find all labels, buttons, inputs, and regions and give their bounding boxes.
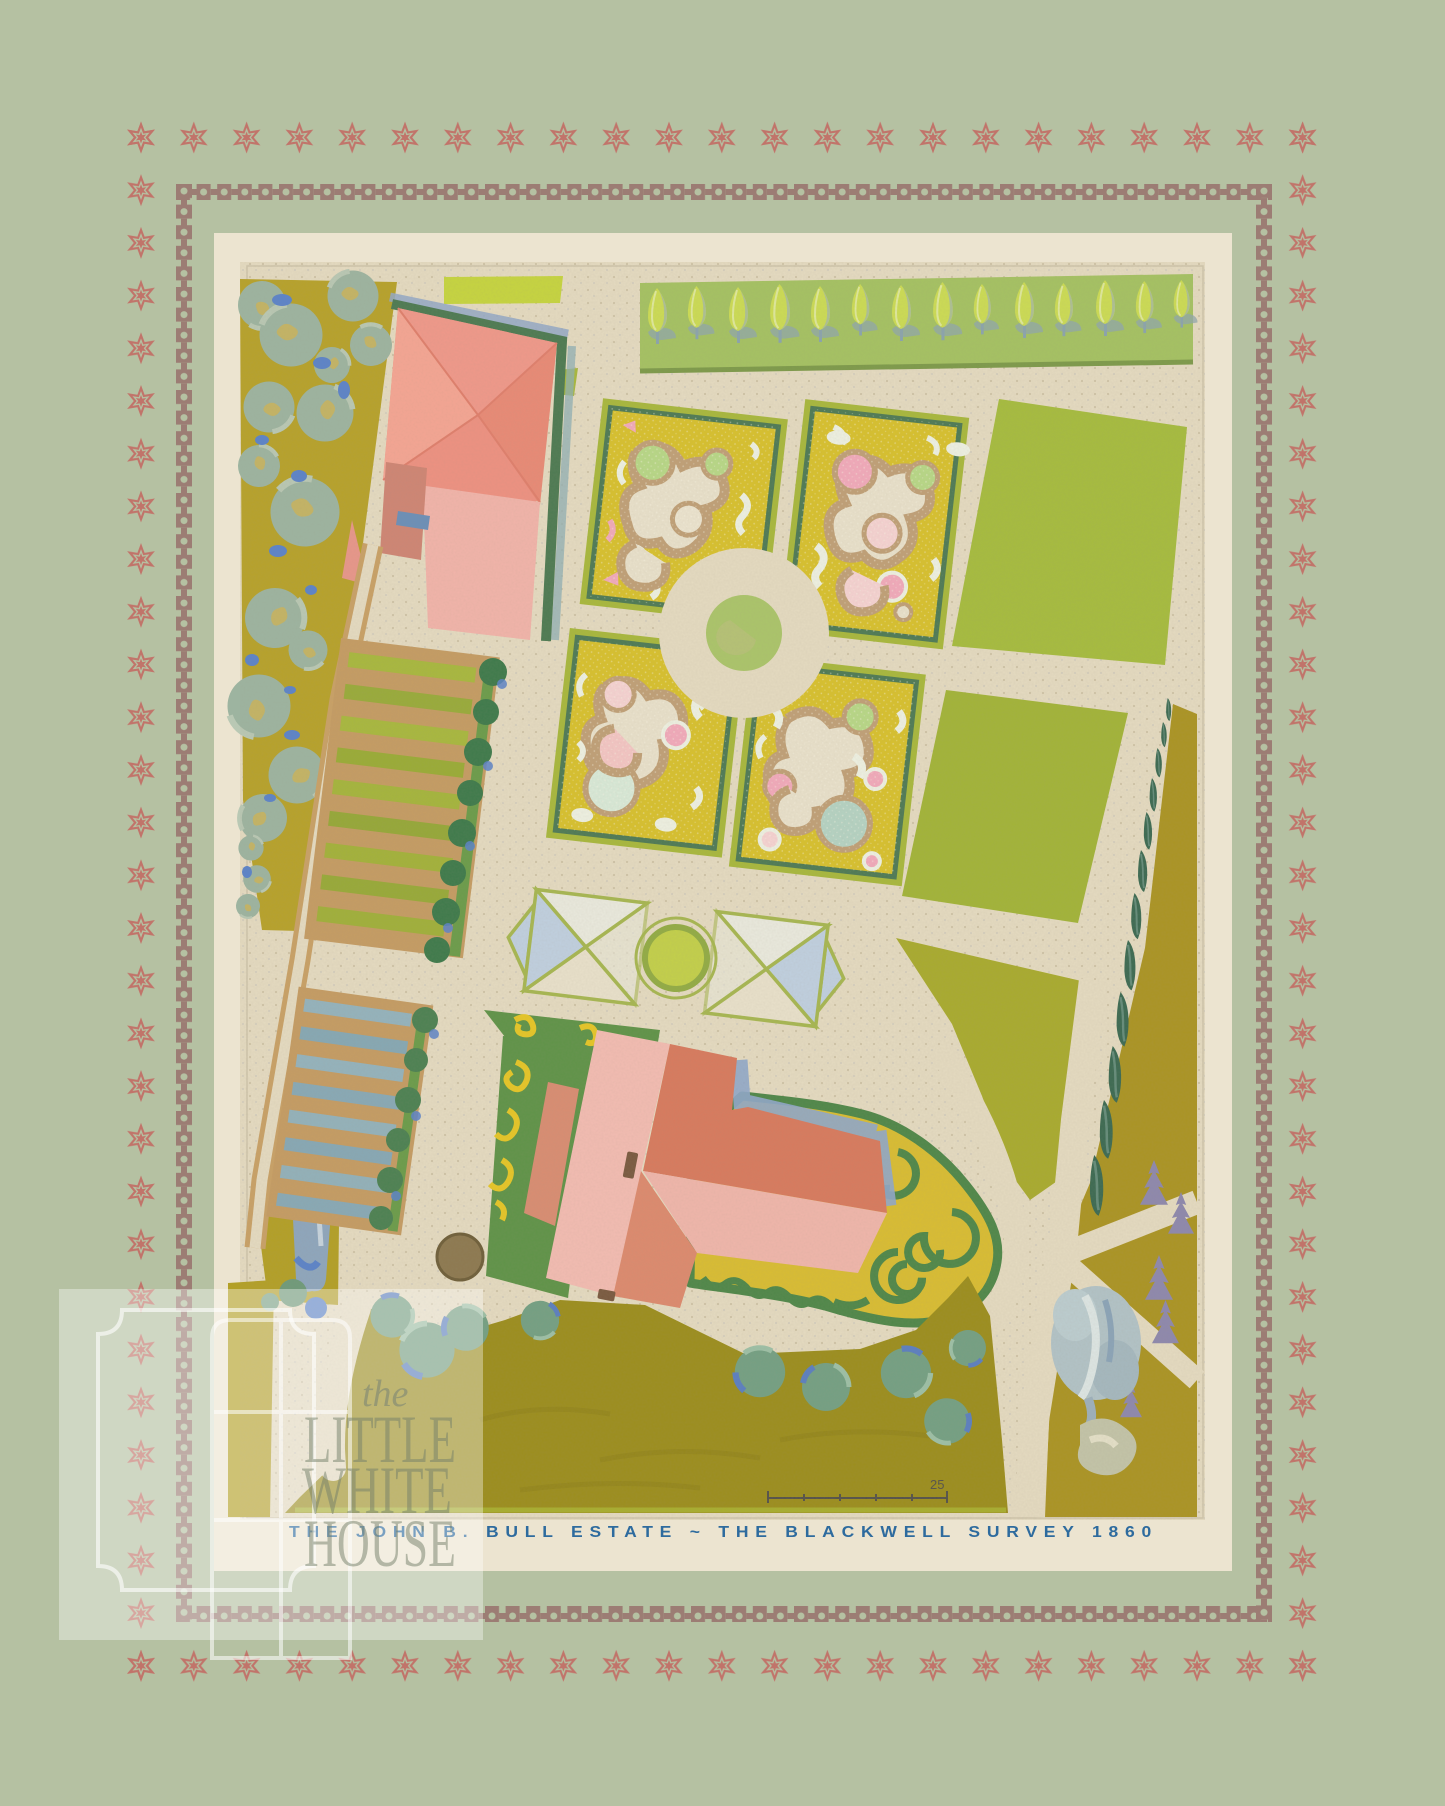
svg-text:HOUSE: HOUSE [304,1505,456,1581]
